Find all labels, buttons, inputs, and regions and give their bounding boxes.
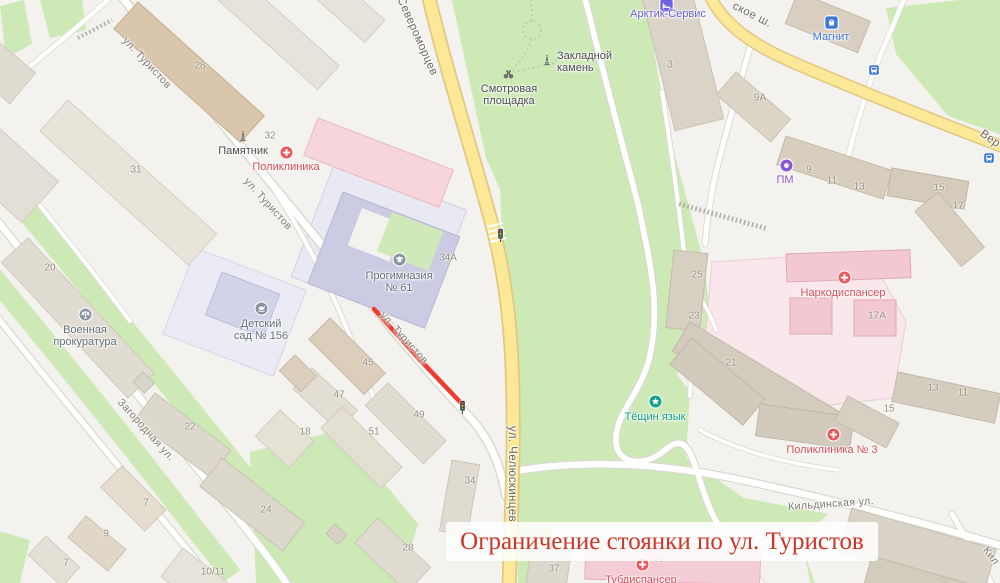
poi-label-line: Тубдиспансер xyxy=(605,575,676,583)
poi-label-line: площадка xyxy=(481,96,537,108)
poi-label[interactable]: Детскийсад № 156 xyxy=(234,319,288,342)
poi-label-line: Закладной xyxy=(557,51,612,63)
poi-label-line: Наркодиспансер xyxy=(801,288,886,300)
poi-label-line: сад № 156 xyxy=(234,331,288,343)
poi-label[interactable]: Наркодиспансер xyxy=(801,288,886,300)
poi-label-line: Поликлиника xyxy=(252,162,319,174)
binoculars-icon[interactable] xyxy=(501,67,516,82)
poi-label[interactable]: Памятник xyxy=(218,146,268,158)
poi-label[interactable]: Военнаяпрокуратура xyxy=(53,325,116,348)
poi-label[interactable]: Тёщин язык xyxy=(625,412,686,424)
poi-label-line: Военная xyxy=(53,325,116,337)
poi-label[interactable]: Магнит xyxy=(813,32,850,44)
medical-cross-icon[interactable] xyxy=(826,427,841,442)
map-canvas[interactable]: ул. Туристовул. Туристовул. Туристовул. … xyxy=(0,0,1000,583)
parking-restriction-banner: Ограничение стоянки по ул. Туристов xyxy=(446,522,878,561)
prosecutor-icon[interactable] xyxy=(78,307,93,322)
poi-label[interactable]: Поликлиника № 3 xyxy=(786,445,877,457)
place-pin-icon[interactable] xyxy=(779,158,794,173)
medical-cross-icon[interactable] xyxy=(279,145,294,160)
poi-label[interactable]: Смотроваяплощадка xyxy=(481,84,537,107)
poi-label-line: № 61 xyxy=(365,283,432,295)
shop-icon[interactable] xyxy=(824,15,839,30)
poi-label-line: прокуратура xyxy=(53,337,116,349)
poi-label-line: ПМ xyxy=(776,175,793,187)
poi-label[interactable]: Закладнойкамень xyxy=(557,51,612,74)
poi-label[interactable]: Арктик-Сервис xyxy=(630,9,706,21)
poi-label[interactable]: Прогимназия№ 61 xyxy=(365,271,432,294)
monument-icon[interactable] xyxy=(540,53,554,67)
kindergarten-icon[interactable] xyxy=(254,301,269,316)
attraction-star-icon[interactable] xyxy=(648,394,663,409)
school-icon[interactable] xyxy=(392,252,407,267)
poi-label-line: камень xyxy=(557,63,612,75)
parking-restriction-text: Ограничение стоянки по ул. Туристов xyxy=(460,528,864,556)
poi-label-line: Детский xyxy=(234,319,288,331)
poi-label-line: Поликлиника № 3 xyxy=(786,445,877,457)
poi-label-line: Смотровая xyxy=(481,84,537,96)
poi-label-line: Прогимназия xyxy=(365,271,432,283)
medical-cross-icon[interactable] xyxy=(837,270,852,285)
poi-label[interactable]: Тубдиспансер xyxy=(605,575,676,583)
poi-label-line: Магнит xyxy=(813,32,850,44)
poi-label-line: Памятник xyxy=(218,146,268,158)
poi-label[interactable]: Поликлиника xyxy=(252,162,319,174)
monument-icon[interactable] xyxy=(236,129,250,143)
poi-label-line: Арктик-Сервис xyxy=(630,9,706,21)
poi-label[interactable]: ПМ xyxy=(776,175,793,187)
poi-label-line: Тёщин язык xyxy=(625,412,686,424)
